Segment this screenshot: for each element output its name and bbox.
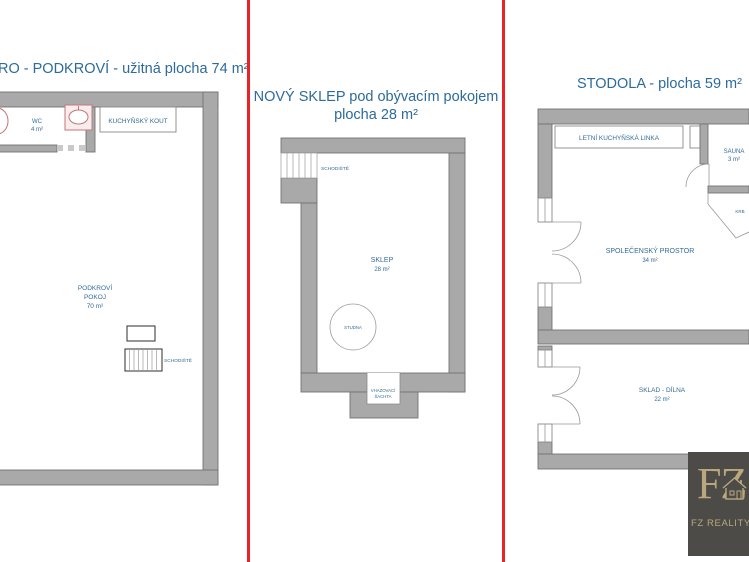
cellar-stairs-label: SCHODIŠTĚ — [321, 164, 349, 172]
wall-segment — [281, 178, 317, 203]
panel-divider-right — [502, 0, 505, 562]
sauna-door-arc — [686, 164, 709, 187]
shaft-label-1: VHAZOVACÍ — [371, 388, 396, 393]
workshop-label: SKLAD - DÍLNA — [639, 385, 686, 394]
fireplace-outline — [708, 193, 749, 238]
workshop-area-label: 22 m² — [654, 397, 669, 403]
chimney-rect — [127, 326, 155, 341]
house-icon — [721, 476, 747, 502]
double-door-lower — [552, 367, 580, 424]
attic-room-label-2: POKOJ — [84, 294, 106, 301]
sauna-area-label: 3 m² — [728, 157, 740, 163]
panel-divider-left — [247, 0, 250, 562]
wc-name-label: WC — [32, 119, 43, 125]
left-stairs-label: SCHODIŠTĚ — [164, 356, 192, 364]
sink-icon — [69, 110, 88, 124]
sauna-wall — [708, 186, 749, 193]
attic-room-area-label: 70 m² — [87, 303, 104, 310]
floorplan-sheet: RO - PODKROVÍ - užitná plocha 74 m² NOVÝ… — [0, 0, 749, 562]
wall-segment — [203, 92, 218, 485]
wall-segment — [0, 92, 218, 107]
cellar-area-label: 28 m² — [374, 267, 389, 273]
fireplace-label: KRB — [735, 209, 744, 214]
door-arc — [552, 254, 581, 283]
wall-segment — [538, 346, 552, 350]
wall-segment — [538, 330, 749, 344]
wall-segment — [538, 307, 552, 330]
sauna-wall — [700, 124, 708, 164]
cellar-room-label: SKLEP — [371, 257, 394, 264]
floorplan-canvas: KUCHYŇSKÝ KOUT WC 4 m² PODKROVÍ POKOJ 70… — [0, 0, 749, 562]
door-arc — [552, 222, 581, 251]
wall-segment — [449, 153, 465, 392]
cabinet-rect — [690, 126, 700, 148]
left-floor-plan: KUCHYŇSKÝ KOUT WC 4 m² PODKROVÍ POKOJ 70… — [0, 92, 218, 485]
wall-segment — [538, 124, 552, 198]
wall-segment — [538, 109, 749, 124]
door-arc — [552, 367, 580, 395]
wall-segment — [0, 470, 218, 485]
right-floor-plan: LETNÍ KUCHYŇSKÁ LINKA SAUNA 3 m² KRB SPO… — [538, 109, 749, 469]
shaft-label-2: ŠACHTA — [374, 394, 391, 399]
double-door-upper — [552, 222, 581, 283]
wc-wall — [0, 145, 57, 152]
kitchen-corner-label: KUCHYŇSKÝ KOUT — [108, 116, 167, 125]
middle-floor-plan: SCHODIŠTĚ SKLEP 28 m² STUDNA VHAZOVACÍ Š… — [281, 138, 465, 418]
summer-kitchen-label: LETNÍ KUCHYŇSKÁ LINKA — [579, 133, 660, 142]
toilet-icon — [0, 108, 8, 134]
agency-logo: FZ FZ REALITY — [688, 452, 749, 556]
wall-segment — [301, 203, 317, 373]
social-room-label: SPOLEČENSKÝ PROSTOR — [606, 246, 695, 255]
logo-name: FZ REALITY — [691, 518, 749, 529]
well-label: STUDNA — [344, 325, 362, 330]
wc-area-label: 4 m² — [31, 127, 43, 133]
attic-room-label-1: PODKROVÍ — [78, 283, 113, 292]
door-arc — [552, 396, 580, 424]
social-room-area-label: 34 m² — [642, 258, 657, 264]
sauna-name-label: SAUNA — [724, 149, 745, 155]
wall-segment — [281, 138, 465, 153]
wall-segment — [538, 442, 552, 454]
